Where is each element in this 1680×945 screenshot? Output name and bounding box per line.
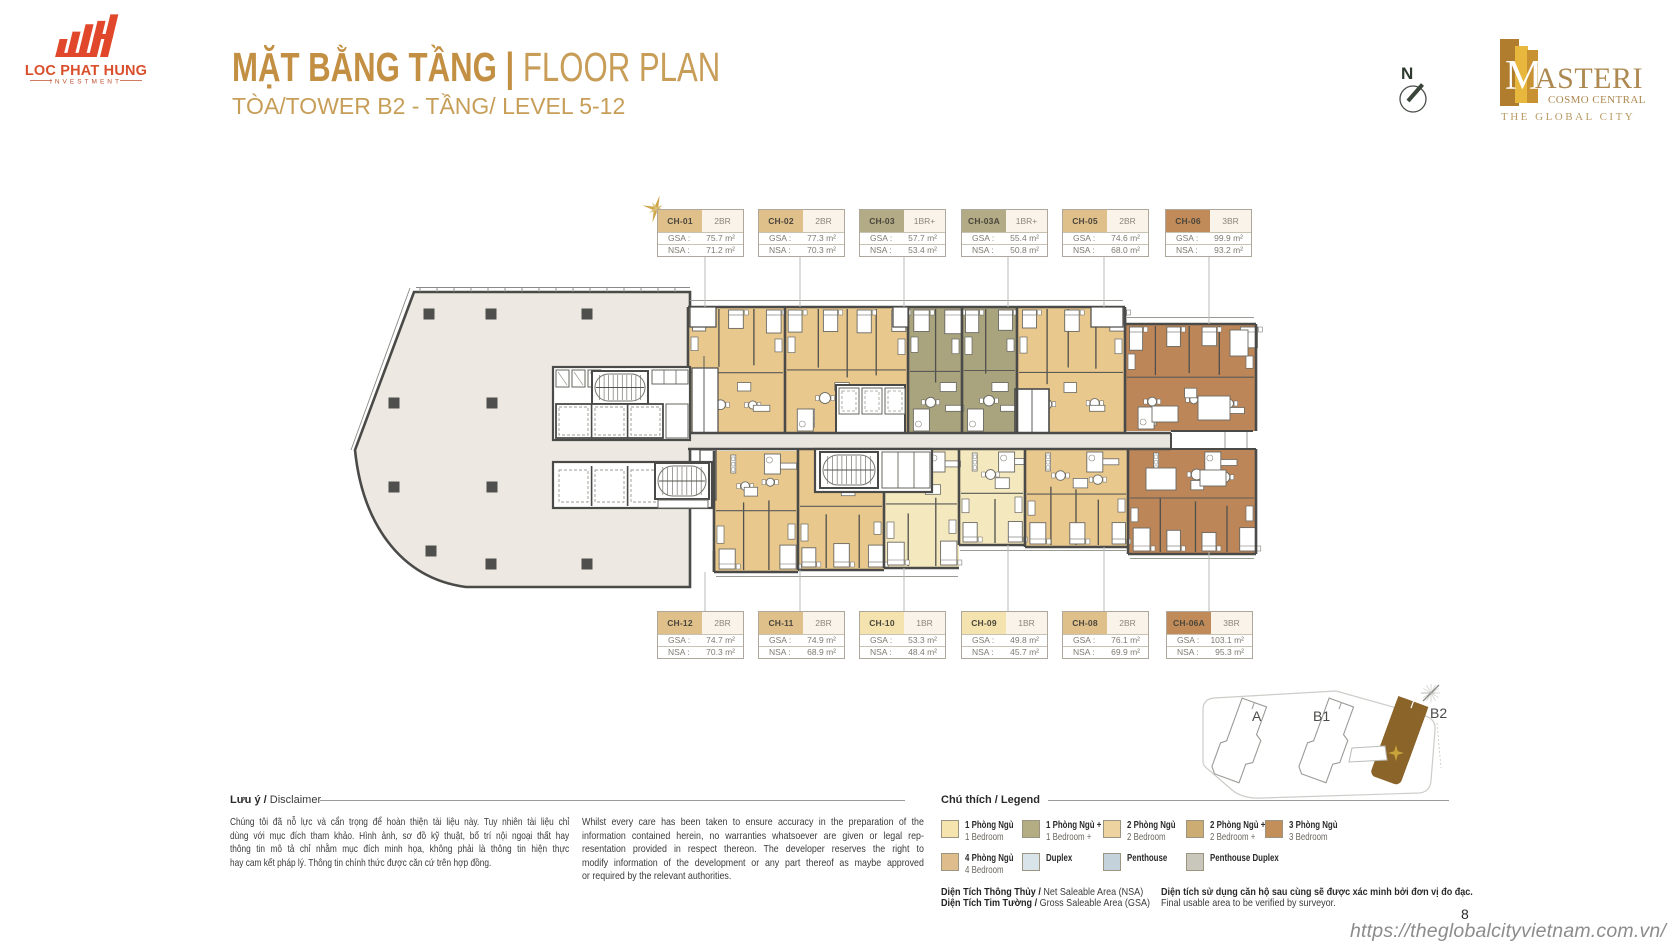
- svg-text:COSMO CENTRAL: COSMO CENTRAL: [1548, 94, 1646, 106]
- svg-text:N: N: [1401, 64, 1413, 83]
- svg-text:THE GLOBAL CITY: THE GLOBAL CITY: [1501, 111, 1635, 123]
- svg-text:B2: B2: [1430, 705, 1447, 721]
- svg-text:LOC PHAT HUNG: LOC PHAT HUNG: [25, 63, 147, 79]
- svg-text:INVESTMENT: INVESTMENT: [50, 79, 122, 86]
- svg-text:ASTERI: ASTERI: [1535, 62, 1643, 95]
- svg-text:A: A: [1252, 708, 1262, 724]
- svg-text:B1: B1: [1313, 708, 1330, 724]
